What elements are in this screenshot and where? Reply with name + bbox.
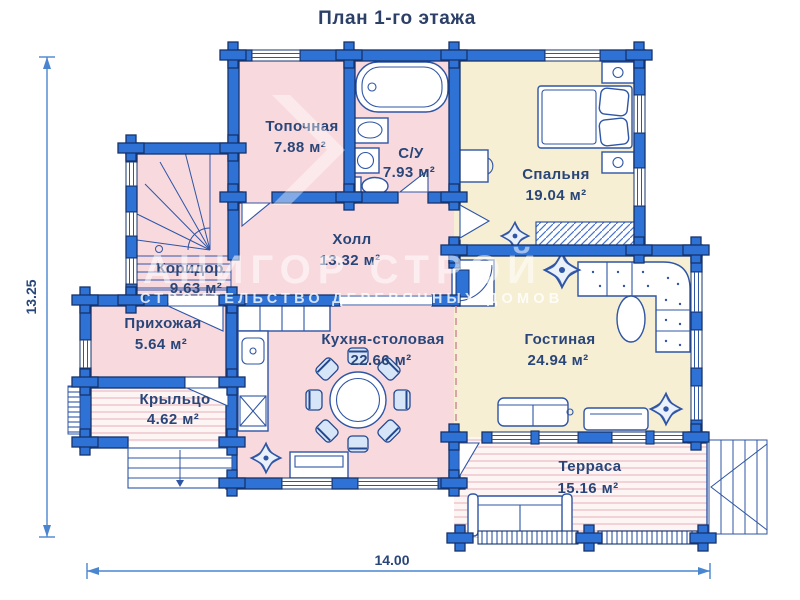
label-bathroom: С/У <box>398 145 424 162</box>
terrace-sofa <box>468 494 572 536</box>
area-entry: 5.64 м² <box>135 336 187 353</box>
dimension-left <box>39 57 55 537</box>
terrace-steps <box>707 437 767 543</box>
washing-machine <box>352 148 379 173</box>
window <box>126 212 137 236</box>
wardrobe <box>536 222 636 246</box>
window <box>252 50 300 61</box>
porch-steps <box>128 448 232 488</box>
floor-plan-page: Топочная 7.88 м² С/У 7.93 м² Спальня 19.… <box>0 0 800 600</box>
dimension-height-label: 13.25 <box>23 279 39 314</box>
window <box>358 478 438 489</box>
window <box>634 168 645 206</box>
sink <box>352 118 388 143</box>
ottoman <box>584 408 648 430</box>
label-hall: Холл <box>332 231 371 248</box>
area-terrace: 15.16 м² <box>558 480 619 497</box>
bed <box>538 86 632 148</box>
dining-table <box>330 372 386 428</box>
wall-segment <box>332 478 358 489</box>
label-terrace: Терраса <box>558 458 621 475</box>
area-bedroom: 19.04 м² <box>526 187 587 204</box>
window <box>634 95 645 133</box>
nightstand-top <box>602 62 634 83</box>
wall-segment <box>126 236 137 258</box>
bathtub <box>356 62 448 112</box>
dimension-width-label: 14.00 <box>374 552 409 568</box>
wall-segment <box>344 50 355 203</box>
page-title: План 1-го этажа <box>318 8 476 29</box>
area-living-room: 24.94 м² <box>528 352 589 369</box>
window <box>126 258 137 284</box>
area-boiler-room: 7.88 м² <box>274 139 326 156</box>
wall-segment <box>482 432 492 443</box>
area-bathroom: 7.93 м² <box>383 164 435 181</box>
window <box>80 340 91 368</box>
window <box>691 386 702 420</box>
nightstand-bottom <box>602 152 634 173</box>
window <box>126 162 137 186</box>
porch-railing <box>68 386 80 434</box>
label-kitchen: Кухня-столовая <box>321 331 444 348</box>
area-porch: 4.62 м² <box>147 411 199 428</box>
sideboard <box>290 452 348 478</box>
window <box>691 272 702 312</box>
label-living-room: Гостиная <box>525 331 596 348</box>
window <box>545 50 600 61</box>
label-entry: Прихожая <box>124 315 201 332</box>
dresser <box>458 150 493 182</box>
wall-segment <box>578 432 612 443</box>
watermark-tagline: СТРОИТЕЛЬСТВО ДЕРЕВЯННЫХ ДОМОВ <box>140 291 563 307</box>
wall-segment <box>126 186 137 212</box>
window <box>492 431 578 444</box>
loveseat <box>498 398 573 426</box>
wall-segment <box>449 50 460 205</box>
label-bedroom: Спальня <box>522 166 590 183</box>
floor-plan-canvas: Топочная 7.88 м² С/У 7.93 м² Спальня 19.… <box>0 0 800 600</box>
wall-segment <box>691 312 702 330</box>
label-porch: Крыльцо <box>139 391 210 408</box>
window <box>282 478 332 489</box>
watermark-brand: АНИГОР СТРОЙ <box>143 246 543 292</box>
window <box>691 330 702 368</box>
window <box>612 431 688 444</box>
coffee-table <box>617 296 645 342</box>
area-kitchen: 22.66 м² <box>351 352 412 369</box>
wall-segment <box>634 133 645 168</box>
wall-segment <box>691 368 702 386</box>
